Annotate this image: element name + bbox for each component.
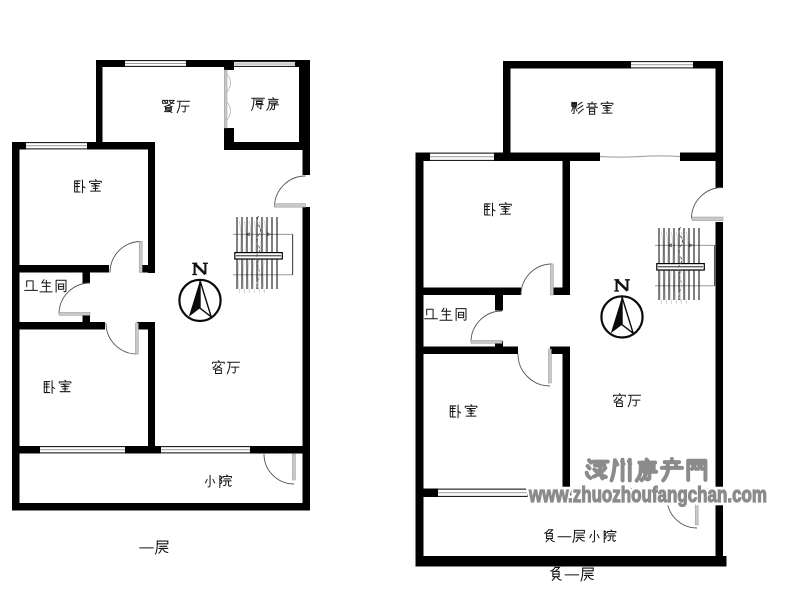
svg-text:www.zhuozhoufangchan.com: www.zhuozhoufangchan.com xyxy=(528,482,767,507)
